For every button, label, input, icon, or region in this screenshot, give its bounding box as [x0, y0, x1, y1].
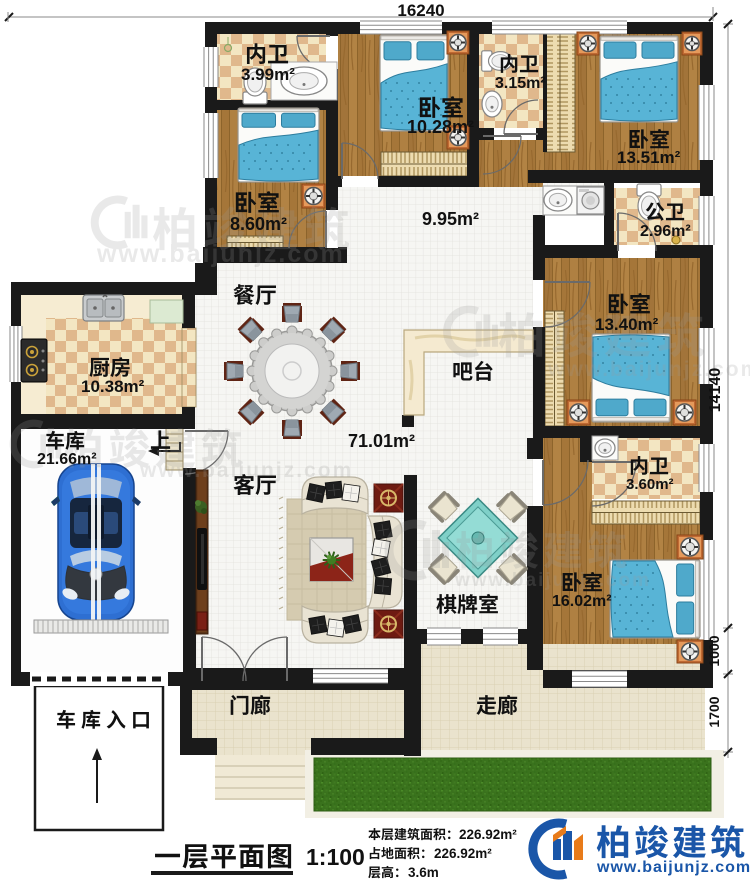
- svg-text:71.01m²: 71.01m²: [348, 431, 415, 451]
- svg-text:3.60m²: 3.60m²: [626, 476, 674, 493]
- svg-text:14140: 14140: [707, 368, 724, 413]
- svg-text:www.baijunjz.com: www.baijunjz.com: [596, 859, 750, 876]
- svg-text:9.95m²: 9.95m²: [422, 209, 479, 229]
- svg-text:www.baijunjz.com: www.baijunjz.com: [454, 570, 651, 591]
- svg-text:3.15m²: 3.15m²: [495, 75, 546, 92]
- svg-text:1700: 1700: [706, 696, 722, 727]
- svg-text:226.92m²: 226.92m²: [459, 827, 517, 842]
- svg-text:16240: 16240: [397, 1, 444, 20]
- svg-text:2.96m²: 2.96m²: [640, 223, 691, 240]
- svg-text:8.60m²: 8.60m²: [230, 214, 287, 234]
- svg-text:1000: 1000: [706, 635, 722, 666]
- svg-text:www.baijunjz.com: www.baijunjz.com: [139, 459, 353, 482]
- svg-text:1:100: 1:100: [306, 844, 365, 870]
- svg-text:10.28m²: 10.28m²: [407, 117, 474, 137]
- svg-text:10.38m²: 10.38m²: [81, 377, 145, 396]
- svg-text:21.66m²: 21.66m²: [37, 451, 97, 468]
- svg-text:13.51m²: 13.51m²: [617, 148, 681, 167]
- svg-text:3.6m: 3.6m: [408, 865, 439, 880]
- svg-text:16.02m²: 16.02m²: [552, 593, 612, 610]
- svg-text:www.baijunjz.com: www.baijunjz.com: [96, 240, 345, 268]
- svg-text:226.92m²: 226.92m²: [434, 846, 492, 861]
- svg-text:3.99m²: 3.99m²: [241, 65, 295, 84]
- svg-text:13.40m²: 13.40m²: [595, 315, 659, 334]
